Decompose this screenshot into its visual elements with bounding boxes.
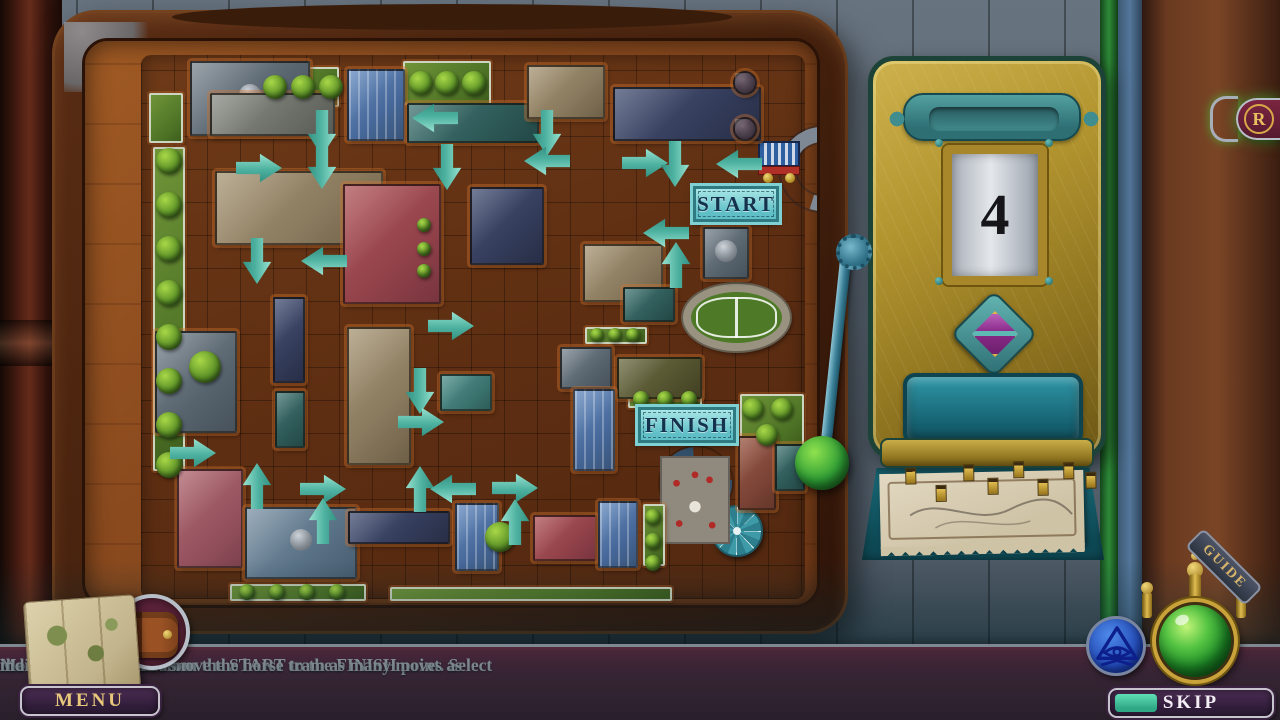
tree [263, 75, 287, 99]
tree [608, 328, 622, 342]
dome-icon [715, 240, 737, 262]
tree [645, 533, 661, 549]
menu-button[interactable]: MENU [20, 686, 160, 716]
lever-gear-icon [836, 234, 872, 270]
building [348, 511, 450, 544]
tram-cab [758, 141, 800, 167]
building [623, 287, 675, 322]
building [573, 389, 615, 471]
machine-lower-panel [903, 373, 1083, 445]
tree [417, 218, 431, 232]
building [527, 65, 605, 119]
map-board-inner: START FINISH [82, 38, 820, 608]
peg-icon [935, 485, 946, 502]
replay-ornament [1210, 96, 1238, 142]
stadium-oval [683, 284, 790, 351]
number-button[interactable] [957, 299, 1033, 369]
tree [645, 509, 661, 525]
tree [681, 391, 697, 407]
tree [156, 192, 182, 218]
finish-sign-label: FINISH [645, 413, 729, 438]
tree [590, 328, 604, 342]
tree [742, 398, 764, 420]
peg-icon [905, 467, 916, 484]
building [598, 501, 638, 568]
tree [771, 398, 793, 420]
horse-tram-icon [758, 139, 800, 183]
hint-button[interactable] [1159, 605, 1231, 677]
peg-icon [1063, 462, 1074, 479]
tree [291, 75, 315, 99]
building [347, 69, 405, 141]
tree [156, 148, 182, 174]
skip-button[interactable]: SKIP [1108, 688, 1274, 718]
tree [319, 75, 343, 99]
peg-icon [987, 478, 998, 495]
tree [156, 236, 182, 262]
screw-icon [1045, 277, 1053, 285]
tree [756, 424, 778, 446]
tree [657, 391, 673, 407]
tram-wheel [785, 173, 795, 183]
objectives-button[interactable] [1086, 616, 1146, 676]
peg-icon [1037, 479, 1048, 496]
finish-sign: FINISH [638, 407, 736, 443]
tree [633, 391, 649, 407]
skip-progress [1115, 694, 1157, 712]
building [733, 71, 757, 95]
side-post-icon [1141, 582, 1153, 594]
ticket-paper[interactable] [879, 470, 1085, 548]
building [273, 297, 305, 383]
start-sign-label: START [697, 192, 775, 217]
start-sign: START [693, 186, 779, 222]
building [347, 327, 411, 465]
hedge [149, 93, 183, 143]
moves-display-value: 4 [981, 186, 1010, 244]
tree [156, 280, 182, 306]
peg-icon [963, 464, 974, 481]
tree [156, 368, 182, 394]
tree [626, 328, 640, 342]
tree [409, 71, 433, 95]
peg-icon [1013, 461, 1024, 478]
tree [462, 71, 486, 95]
guide-banner-label: GUIDE [1199, 542, 1250, 593]
tree [435, 71, 459, 95]
building [440, 374, 492, 411]
tree [417, 264, 431, 278]
cafe-plaza [660, 456, 730, 544]
peg-icon [1085, 472, 1096, 489]
skip-button-label: SKIP [1163, 692, 1219, 714]
tree [156, 324, 182, 350]
screw-icon [1045, 139, 1053, 147]
building [738, 436, 776, 510]
building [470, 187, 544, 265]
tram-wheel [763, 173, 773, 183]
moves-display: 4 [943, 145, 1047, 285]
side-post-icon [1142, 592, 1152, 618]
replay-icon: R [1244, 104, 1274, 134]
replay-badge[interactable]: R [1236, 98, 1280, 140]
journal-book-icon [134, 612, 178, 658]
building [275, 391, 305, 448]
dome-icon [290, 529, 312, 551]
building [177, 469, 243, 568]
machine-top-plaque [903, 93, 1081, 141]
eye-pyramid-icon [1090, 620, 1144, 674]
tree [189, 351, 221, 383]
building [733, 117, 757, 141]
game-scene: START FINISH 4 R Move the hor [0, 0, 1280, 720]
machine-base [880, 438, 1094, 468]
building [703, 227, 749, 279]
map-button[interactable] [23, 594, 141, 696]
building [533, 515, 597, 561]
tree [417, 242, 431, 256]
screw-icon [935, 277, 943, 285]
building [560, 347, 612, 389]
tree [156, 412, 182, 438]
lever-handle[interactable] [795, 436, 849, 490]
screw-icon [935, 139, 943, 147]
menu-button-label: MENU [55, 690, 125, 712]
hint-assembly: GUIDE [1130, 540, 1260, 710]
ticket-machine: 4 [868, 56, 1106, 460]
